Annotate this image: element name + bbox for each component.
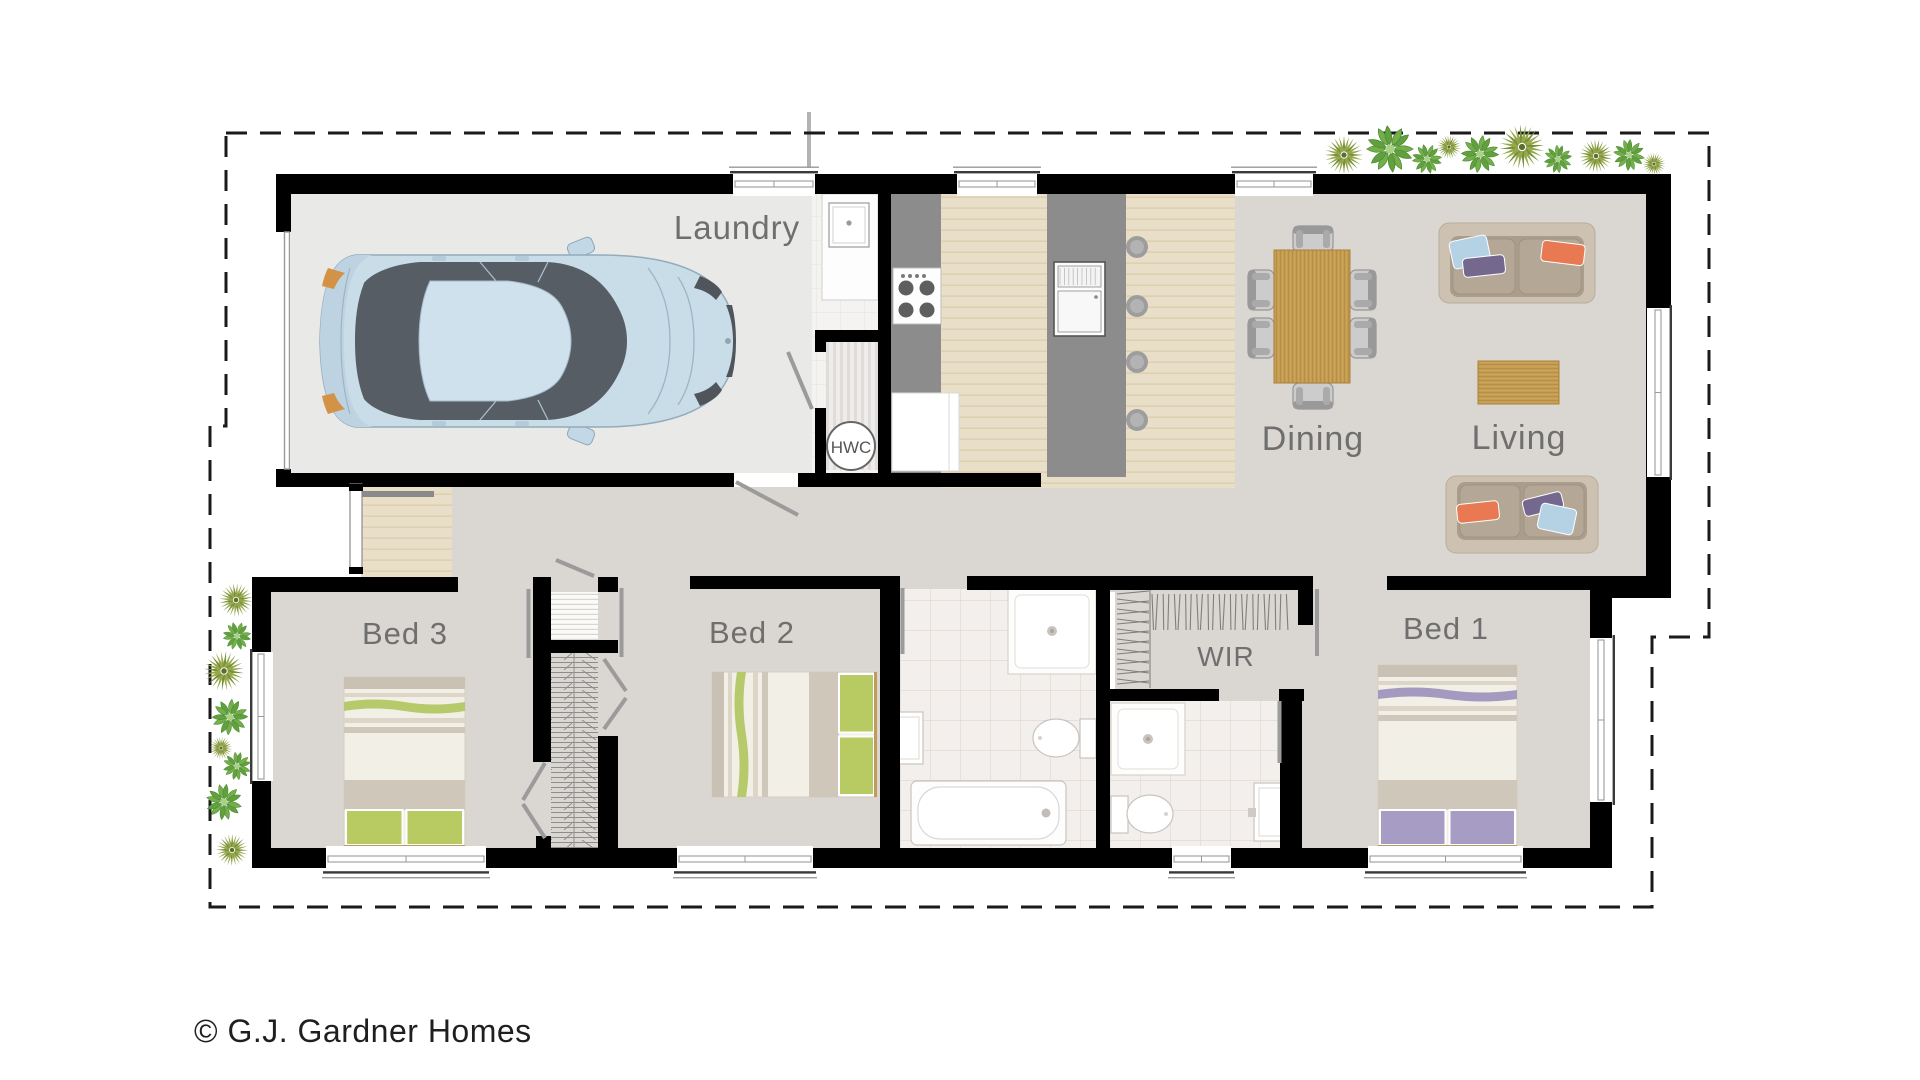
svg-text:Bed 2: Bed 2 <box>709 615 795 650</box>
svg-text:WIR: WIR <box>1197 641 1254 672</box>
svg-text:© G.J. Gardner Homes: © G.J. Gardner Homes <box>194 1013 532 1049</box>
svg-text:HWC: HWC <box>831 438 872 457</box>
svg-text:Living: Living <box>1472 419 1567 457</box>
svg-text:Bed 3: Bed 3 <box>362 616 448 651</box>
svg-text:Dining: Dining <box>1262 420 1364 458</box>
svg-text:Laundry: Laundry <box>674 209 800 246</box>
svg-text:Bed 1: Bed 1 <box>1403 611 1489 646</box>
